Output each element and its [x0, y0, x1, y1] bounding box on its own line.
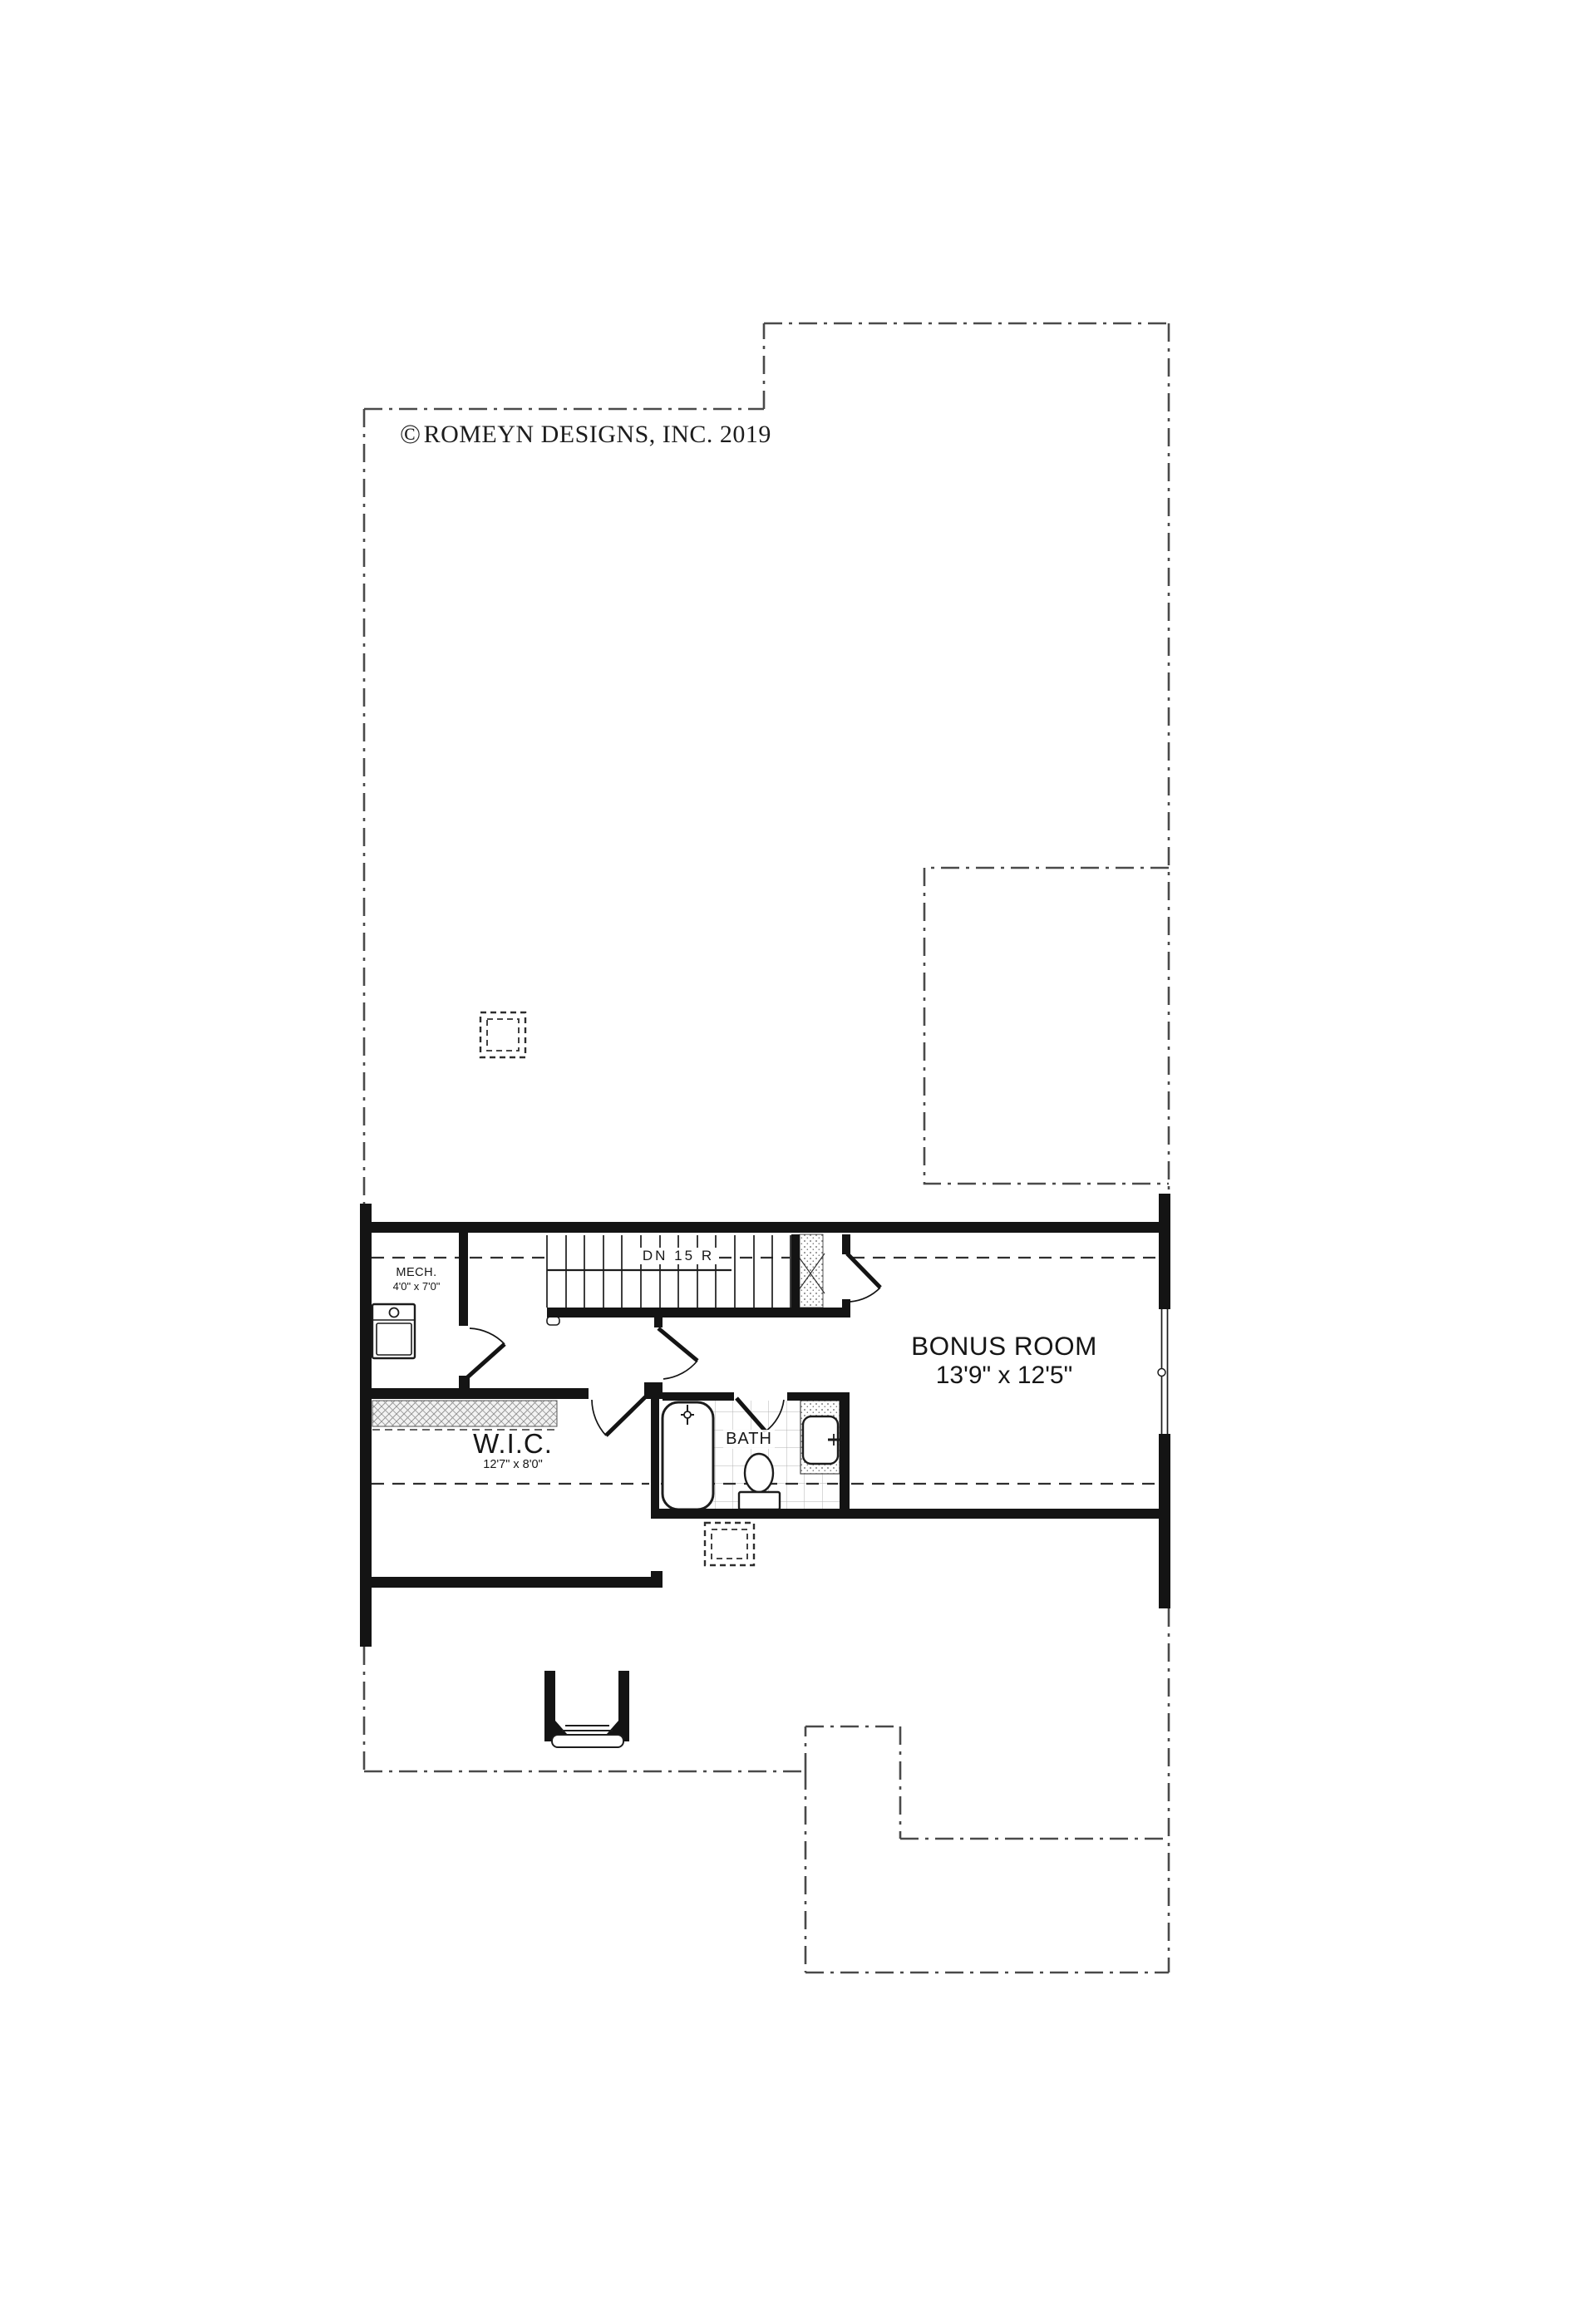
- door-mech: [465, 1328, 505, 1379]
- door-hall: [658, 1328, 697, 1379]
- floor-plan-drawing: [0, 0, 1596, 2305]
- mech-name: MECH.: [393, 1266, 441, 1280]
- wall-bonus-door-post-bottom: [842, 1299, 850, 1317]
- closet-shelf: [372, 1401, 557, 1430]
- room-label-bath: BATH: [723, 1430, 775, 1449]
- wall-exterior-right-lower: [1159, 1434, 1170, 1608]
- room-label-bonus: BONUS ROOM 13'9" x 12'5": [911, 1331, 1097, 1390]
- stair-treads: [547, 1235, 791, 1308]
- mech-dimensions: 4'0" x 7'0": [393, 1280, 441, 1293]
- wall-mech-east: [459, 1233, 468, 1326]
- wall-stairs-south: [547, 1308, 850, 1317]
- wall-landing-post: [791, 1234, 800, 1308]
- landing-chase: [796, 1234, 825, 1308]
- attic-access-upper: [480, 1012, 525, 1057]
- wall-exterior-top: [360, 1222, 1170, 1233]
- roof-outline: [364, 323, 1169, 1973]
- wall-bonus-door-post-top: [842, 1234, 850, 1254]
- bonus-dimensions: 13'9" x 12'5": [911, 1361, 1097, 1390]
- wall-south-bath-bonus: [651, 1509, 1170, 1519]
- dormer-window-structure: [544, 1671, 629, 1747]
- laundry-tub: [372, 1304, 415, 1358]
- door-wic: [592, 1396, 646, 1436]
- copyright-notice: ©ROMEYN DESIGNS, INC. 2019: [400, 420, 771, 451]
- room-label-wic: W.I.C. 12'7" x 8'0": [473, 1429, 553, 1471]
- wall-wic-south: [360, 1577, 663, 1588]
- wall-exterior-right-upper: [1159, 1194, 1170, 1309]
- wall-wic-north: [360, 1388, 589, 1399]
- stairs-label: DN 15 R: [638, 1248, 719, 1264]
- copyright-symbol: ©: [400, 420, 421, 450]
- room-label-mech: MECH. 4'0" x 7'0": [393, 1266, 441, 1293]
- wic-name: W.I.C.: [473, 1429, 553, 1458]
- bonus-name: BONUS ROOM: [911, 1331, 1097, 1361]
- wall-bath-east: [840, 1392, 850, 1519]
- wall-wic-southeast-stub: [651, 1571, 663, 1588]
- wall-bath-west: [651, 1392, 659, 1519]
- wall-bath-north-west: [663, 1392, 734, 1401]
- floor-plan-page: ©ROMEYN DESIGNS, INC. 2019 MECH. 4'0" x …: [0, 0, 1596, 2305]
- copyright-text: ROMEYN DESIGNS, INC. 2019: [424, 421, 771, 448]
- wic-dimensions: 12'7" x 8'0": [473, 1458, 553, 1471]
- door-bonus-room: [847, 1253, 880, 1302]
- wall-hall-east-post: [654, 1308, 663, 1327]
- future-room-outline: [924, 868, 1169, 1184]
- vanity-sink: [800, 1401, 840, 1474]
- stair-newel-cap: [547, 1317, 559, 1325]
- bonus-room-window: [1157, 1309, 1172, 1434]
- bathtub: [663, 1402, 713, 1510]
- attic-access-lower: [705, 1523, 754, 1565]
